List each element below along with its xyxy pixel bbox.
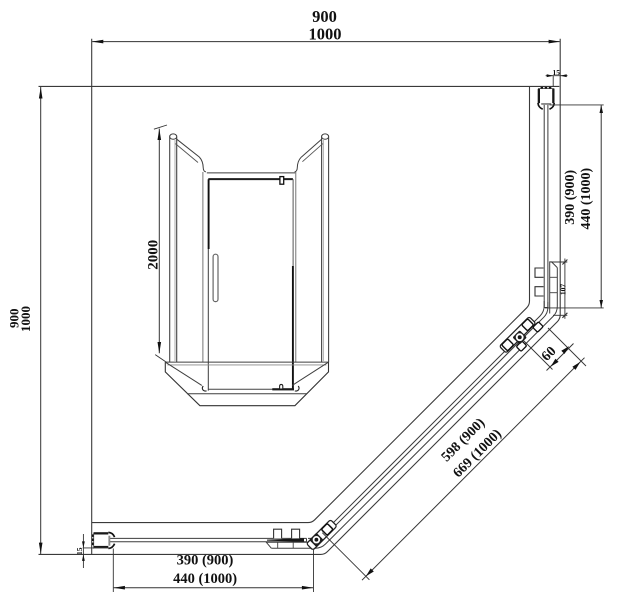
svg-text:15: 15 [75,547,84,555]
svg-text:15: 15 [553,68,561,77]
svg-text:390 (900): 390 (900) [177,552,234,568]
svg-text:1000: 1000 [309,24,342,43]
svg-text:440 (1000): 440 (1000) [579,167,594,229]
svg-text:440 (1000): 440 (1000) [173,571,237,587]
svg-text:390 (900): 390 (900) [563,170,578,225]
svg-text:1000: 1000 [18,306,33,332]
svg-text:107: 107 [558,284,567,296]
svg-text:2000: 2000 [145,240,161,270]
